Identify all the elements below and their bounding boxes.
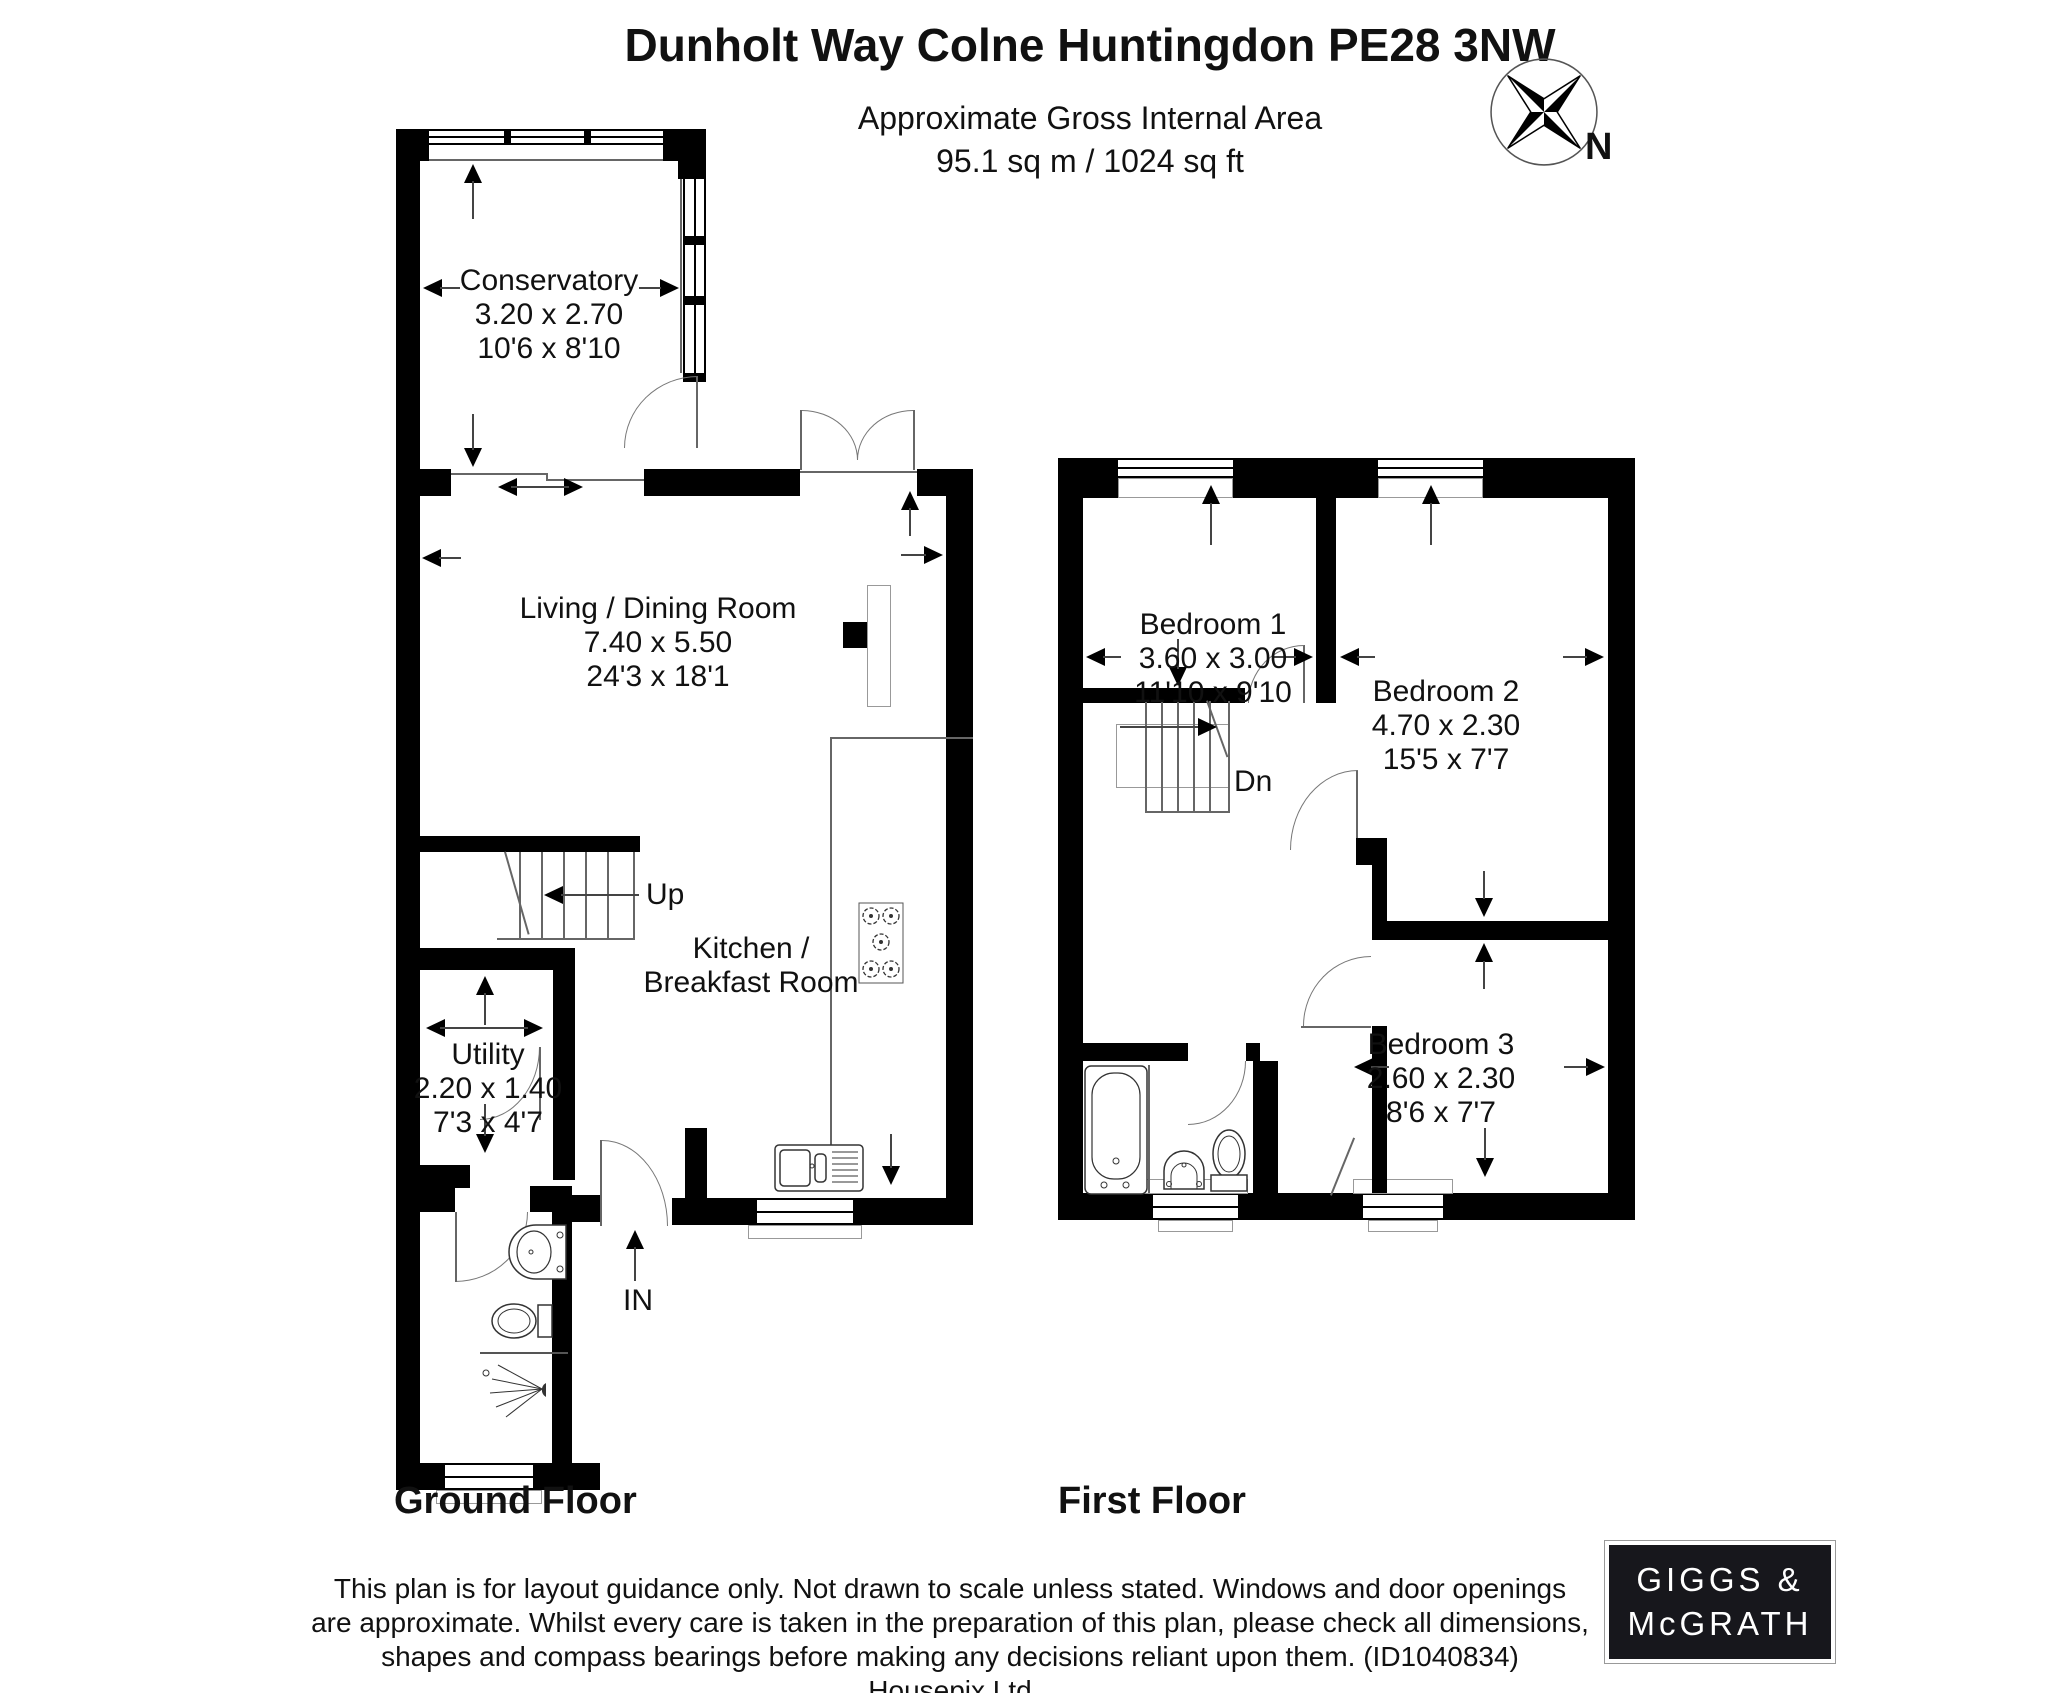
entrance-label: IN <box>623 1284 653 1318</box>
dim-line <box>511 486 569 488</box>
dim-line <box>901 554 926 556</box>
door-leaf <box>455 1212 457 1282</box>
window <box>757 1198 853 1225</box>
disclaimer-line: shapes and compass bearings before makin… <box>250 1640 1650 1674</box>
window-sill <box>1353 1179 1453 1194</box>
wall <box>420 1180 455 1212</box>
wall <box>1483 458 1635 498</box>
room-name: Bedroom 3 <box>1367 1028 1515 1062</box>
dim-line <box>1357 656 1375 658</box>
disclaimer-line: This plan is for layout guidance only. N… <box>250 1572 1650 1606</box>
room-size-metric: 3.20 x 2.70 <box>460 298 638 332</box>
room-size-imperial: 24'3 x 18'1 <box>520 660 797 694</box>
dim-arrow-right <box>1294 648 1313 666</box>
dim-arrow-down <box>1476 1158 1494 1177</box>
window <box>1118 458 1233 478</box>
door-arc <box>802 410 858 460</box>
dim-arrow-up <box>1422 485 1440 504</box>
dim-line <box>1103 656 1121 658</box>
room-size-imperial: 10'6 x 8'10 <box>460 332 638 366</box>
window <box>683 179 706 373</box>
wall <box>396 129 429 161</box>
entrance-label-text: IN <box>623 1284 653 1318</box>
threshold-line <box>451 473 547 475</box>
dim-line <box>561 894 639 896</box>
wall <box>663 129 706 161</box>
wall <box>530 1186 552 1212</box>
room-size-imperial: 8'6 x 7'7 <box>1367 1096 1515 1130</box>
room-label-bedroom1: Bedroom 1 3.60 x 3.00 11'10 x 9'10 <box>1134 608 1292 710</box>
wall <box>672 1198 757 1225</box>
dim-arrow-down <box>882 1166 900 1185</box>
entrance-arrow-line <box>634 1247 636 1281</box>
logo-line1: GIGGS & <box>1636 1558 1803 1602</box>
dim-line <box>1564 1066 1588 1068</box>
dim-line <box>439 557 461 559</box>
stair-edge <box>1145 701 1147 813</box>
dim-arrow-right <box>1586 1058 1605 1076</box>
threshold-line <box>546 479 644 481</box>
compass-icon <box>1488 56 1600 168</box>
first-floor-caption: First Floor <box>1058 1480 1246 1523</box>
wall <box>946 469 973 1225</box>
door-arc <box>624 376 698 448</box>
logo-line2: McGRATH <box>1627 1602 1812 1646</box>
room-size-imperial: 11'10 x 9'10 <box>1134 676 1292 710</box>
shower-icon <box>483 1365 546 1417</box>
dim-arrow-down <box>464 448 482 467</box>
wall <box>572 1195 600 1222</box>
stair-tread <box>607 852 609 940</box>
agency-logo: GIGGS & McGRATH <box>1604 1540 1836 1664</box>
window-sill <box>748 1225 862 1239</box>
stair-tread <box>519 852 521 940</box>
window-sill <box>1158 1220 1233 1232</box>
wall <box>1316 478 1336 703</box>
agency-logo-text: GIGGS & McGRATH <box>1609 1545 1831 1659</box>
disclaimer-line: are approximate. Whilst every care is ta… <box>250 1606 1650 1640</box>
basin-icon <box>1158 1135 1210 1191</box>
room-size-imperial: 7'3 x 4'7 <box>414 1106 562 1140</box>
window-mullion <box>504 129 511 145</box>
dim-arrow-right <box>924 546 943 564</box>
chimney-niche <box>867 585 891 707</box>
dim-line <box>472 181 474 219</box>
stairs-up-label: Up <box>646 878 684 912</box>
room-label-bedroom3: Bedroom 3 2.60 x 2.30 8'6 x 7'7 <box>1367 1028 1515 1130</box>
stair-edge <box>633 852 635 940</box>
compass-north-label: N <box>1585 126 1612 169</box>
room-label-bedroom2: Bedroom 2 4.70 x 2.30 15'5 x 7'7 <box>1372 675 1520 777</box>
stair-tread <box>1177 701 1179 813</box>
room-label-utility: Utility 2.20 x 1.40 7'3 x 4'7 <box>414 1038 562 1140</box>
room-label-conservatory: Conservatory 3.20 x 2.70 10'6 x 8'10 <box>460 264 638 366</box>
room-name: Conservatory <box>460 264 638 298</box>
door-leaf <box>913 410 915 470</box>
dim-line <box>890 1134 892 1168</box>
room-label-kitchen: Kitchen / Breakfast Room <box>643 932 858 1000</box>
cupboard-door-leaf <box>1330 1138 1355 1196</box>
window <box>1378 458 1483 478</box>
shower-room-fixtures <box>476 1221 572 1421</box>
stair-edge <box>1145 811 1230 813</box>
room-name: Bedroom 2 <box>1372 675 1520 709</box>
wall <box>420 836 640 852</box>
dim-line <box>472 414 474 450</box>
wall <box>1083 1043 1188 1061</box>
partition-line <box>1148 1065 1150 1193</box>
stair-break-line <box>504 851 530 934</box>
dim-line <box>440 1027 528 1029</box>
room-size-metric: 4.70 x 2.30 <box>1372 709 1520 743</box>
stair-tread <box>1161 701 1163 813</box>
wall <box>1233 458 1378 498</box>
sink-icon <box>774 1144 864 1192</box>
dim-arrow-up <box>1202 485 1220 504</box>
dim-arrow-down <box>1475 898 1493 917</box>
toilet-icon <box>492 1304 552 1338</box>
dim-arrow-up <box>1475 943 1493 962</box>
basin-icon <box>509 1225 566 1279</box>
threshold-line <box>800 471 917 473</box>
wall <box>1058 1193 1635 1220</box>
bath-icon <box>1084 1065 1148 1195</box>
floorplan-page: Dunholt Way Colne Huntingdon PE28 3NW Ap… <box>0 0 2048 1693</box>
wall <box>1058 458 1083 1220</box>
stair-direction-arrow <box>1198 718 1217 736</box>
counter-line <box>830 737 973 739</box>
first-floor-plan: Dn <box>1058 443 1637 1243</box>
room-size-metric: 7.40 x 5.50 <box>520 626 797 660</box>
wall <box>685 1128 707 1200</box>
dim-line <box>639 287 661 289</box>
door-arc <box>857 410 913 460</box>
front-door-arc <box>602 1140 668 1226</box>
door-leaf <box>696 376 698 448</box>
dim-line <box>1484 1128 1486 1160</box>
wall <box>678 161 706 179</box>
room-name: Bedroom 1 <box>1134 608 1292 642</box>
room-name: Breakfast Room <box>643 966 858 1000</box>
disclaimer: This plan is for layout guidance only. N… <box>250 1572 1650 1693</box>
window-mullion <box>584 129 591 145</box>
wall <box>853 1198 973 1225</box>
wall <box>1058 458 1118 498</box>
stair-tread <box>585 852 587 940</box>
stair-tread <box>563 852 565 940</box>
door-arc <box>1303 956 1371 1026</box>
wall <box>414 469 451 496</box>
window <box>1153 1193 1238 1220</box>
stair-edge <box>1228 701 1230 813</box>
ground-floor-plan: Up IN <box>396 126 990 1518</box>
window-mullion <box>683 236 706 245</box>
dim-line <box>1563 656 1587 658</box>
dim-line <box>909 508 911 536</box>
wall-line <box>429 159 663 161</box>
wall-line <box>680 179 682 373</box>
stair-tread <box>541 852 543 940</box>
hob-icon <box>858 902 904 984</box>
dim-line <box>1483 871 1485 899</box>
room-size-metric: 2.20 x 1.40 <box>414 1072 562 1106</box>
dim-line <box>1210 503 1212 545</box>
room-label-living-dining: Living / Dining Room 7.40 x 5.50 24'3 x … <box>520 592 797 694</box>
ground-floor-caption: Ground Floor <box>394 1480 637 1523</box>
wall <box>1356 838 1387 865</box>
toilet-icon <box>1206 1127 1252 1193</box>
room-size-metric: 3.60 x 3.00 <box>1134 642 1292 676</box>
wall <box>396 129 420 1490</box>
chimney-block <box>843 622 867 648</box>
credit-line: Housepix Ltd <box>250 1674 1650 1693</box>
stairs-down-label: Dn <box>1234 765 1272 799</box>
room-name: Living / Dining Room <box>520 592 797 626</box>
stair-tread <box>1193 701 1195 813</box>
dim-arrow-right <box>1585 648 1604 666</box>
wall <box>1246 1043 1260 1061</box>
dim-line <box>1120 726 1200 728</box>
wall <box>1253 1061 1278 1193</box>
room-name: Utility <box>414 1038 562 1072</box>
room-name: Kitchen / <box>643 932 858 966</box>
wall <box>420 948 575 970</box>
room-size-imperial: 15'5 x 7'7 <box>1372 743 1520 777</box>
wall <box>1608 458 1635 1220</box>
wall <box>644 469 800 496</box>
door-arc <box>1290 770 1358 850</box>
window <box>1363 1193 1443 1220</box>
stair-edge <box>497 938 635 940</box>
dim-line <box>484 993 486 1025</box>
door-arc <box>1188 1061 1246 1125</box>
dim-line <box>1430 503 1432 545</box>
window-mullion <box>683 296 706 305</box>
room-size-metric: 2.60 x 2.30 <box>1367 1062 1515 1096</box>
wall <box>1372 863 1387 923</box>
wall <box>1372 921 1608 940</box>
dim-line <box>1483 961 1485 989</box>
window-sill <box>1368 1220 1438 1232</box>
door-leaf <box>1301 1026 1371 1028</box>
dim-line <box>440 287 460 289</box>
dim-arrow-right <box>660 279 679 297</box>
window <box>429 129 663 145</box>
